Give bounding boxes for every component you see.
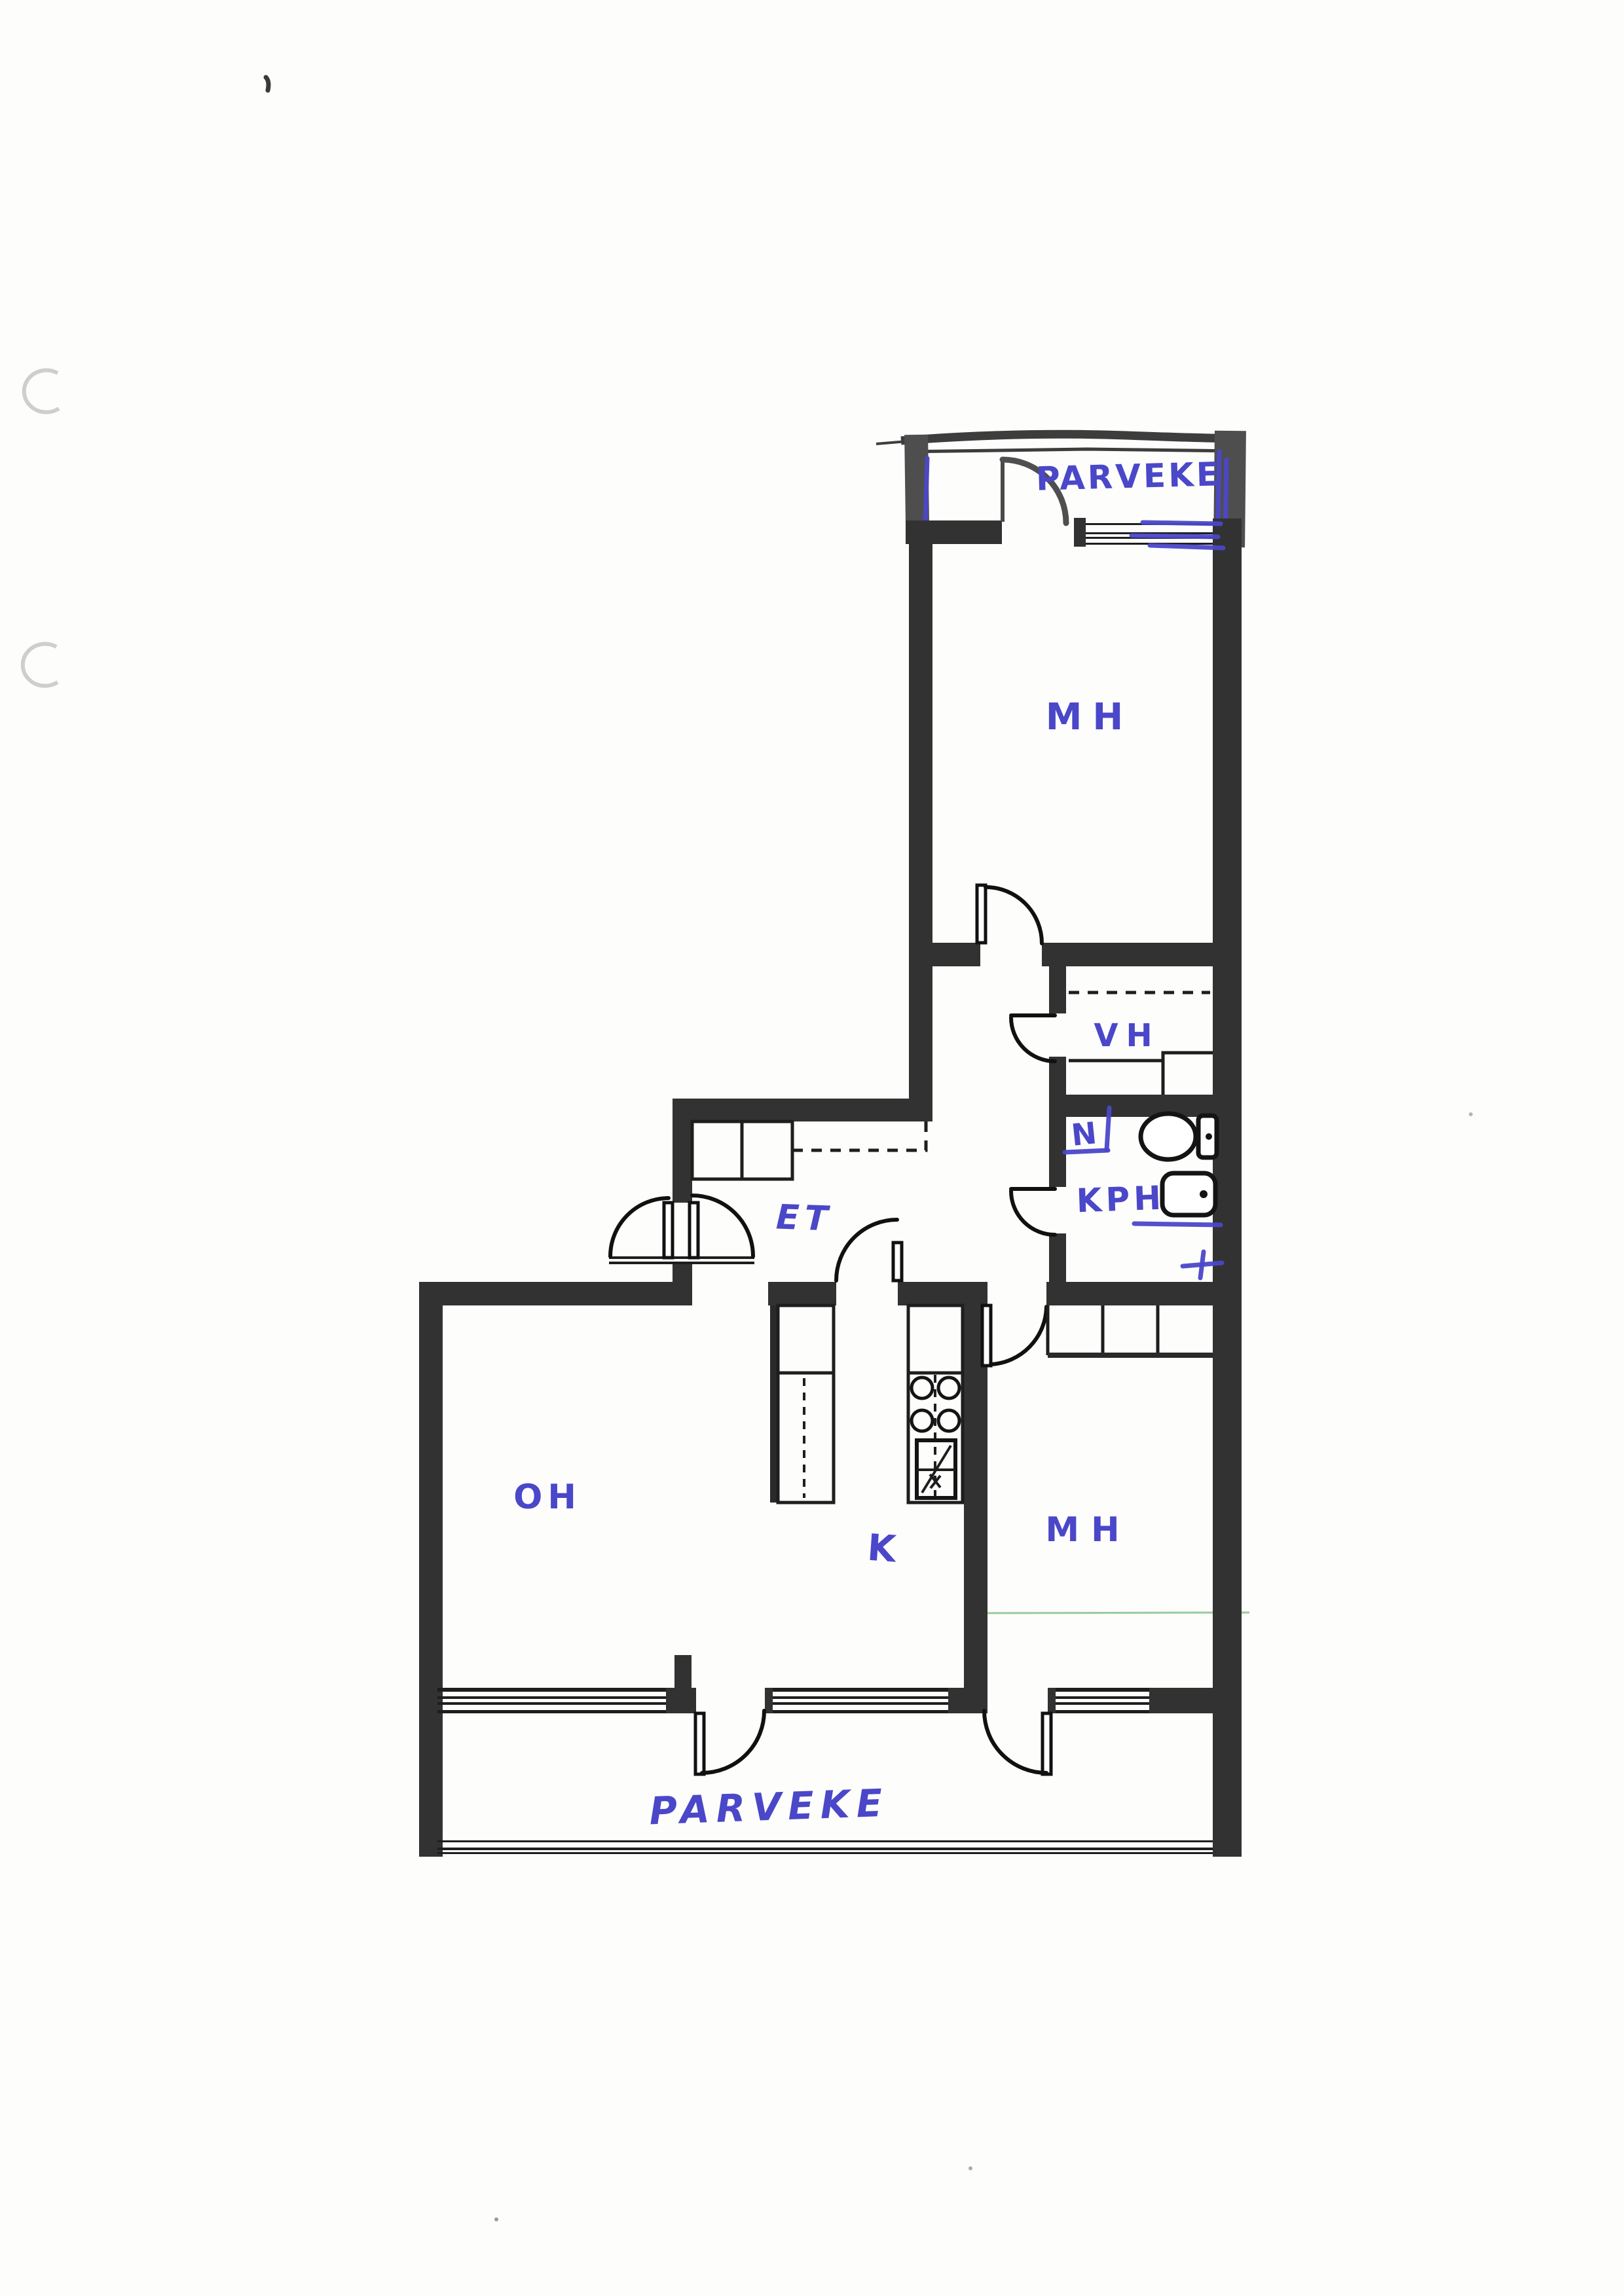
room-labels: PARVEKE MH VH KPH N ET OH K MH PARVEKE [513, 455, 1222, 1833]
wall-segment [1049, 1057, 1066, 1187]
sink-icon [1162, 1173, 1215, 1215]
wardrobe-bottom-bedroom [1048, 1305, 1213, 1358]
balcony-railing-sketch [901, 434, 1246, 441]
room-label-bedroom-top: MH [1046, 696, 1134, 738]
wall-pier [948, 1688, 986, 1713]
wardrobe-hallway [692, 1121, 926, 1179]
balcony-railing-sketch-inner [906, 449, 1242, 452]
window-bottom-bedroom [1056, 1688, 1149, 1713]
blue-sink-mark [1134, 1224, 1221, 1225]
wall-pier [765, 1688, 773, 1713]
stove-icon [908, 1305, 963, 1503]
window-kitchen [773, 1688, 948, 1713]
room-label-hallway: ET [775, 1198, 834, 1239]
blue-window-mark [1150, 545, 1223, 548]
wall-segment [1042, 943, 1242, 966]
room-label-living-room: OH [513, 1478, 581, 1517]
balcony-door-living-room [695, 1711, 764, 1774]
wall-segment [673, 1099, 932, 1121]
window-living-room [437, 1688, 666, 1713]
kitchen-door [836, 1220, 902, 1281]
wall-pier [666, 1688, 696, 1713]
room-label-balcony-top: PARVEKE [1035, 455, 1221, 498]
scan-artifacts [23, 77, 1473, 2221]
toilet-icon [1141, 1114, 1217, 1159]
wall-segment [1149, 1688, 1242, 1713]
punch-hole-artifact [24, 371, 59, 412]
wall-stub [674, 1655, 692, 1688]
wall-segment [909, 943, 980, 966]
room-label-bathroom: KPH [1076, 1179, 1166, 1220]
bathroom-note: N [1069, 1115, 1098, 1153]
balcony-door-kitchen [984, 1711, 1051, 1774]
wall-segment [768, 1282, 836, 1305]
room-label-balcony-bottom: PARVEKE [648, 1781, 889, 1834]
entrance-door [609, 1195, 754, 1264]
fixtures [692, 993, 1217, 1503]
floor-plan-svg: PARVEKE MH VH KPH N ET OH K MH PARVEKE [0, 0, 1624, 2296]
blue-window-mark [1132, 536, 1218, 537]
wall-segment [909, 520, 932, 1121]
room-label-closet: VH [1094, 1017, 1160, 1054]
bedroom-top-door [977, 885, 1042, 943]
punch-hole-artifact [23, 644, 58, 686]
closet-door [1011, 1015, 1055, 1061]
room-label-bedroom-bottom: MH [1045, 1510, 1131, 1550]
speck [1469, 1112, 1473, 1116]
wall-segment [1049, 966, 1066, 1013]
room-label-kitchen: K [866, 1527, 898, 1571]
closet-niche [1163, 1053, 1213, 1095]
bedroom-bottom-door [982, 1305, 1046, 1366]
stray-pen-mark [266, 77, 268, 90]
scanned-floorplan-page: PARVEKE MH VH KPH N ET OH K MH PARVEKE [0, 0, 1624, 2296]
speck [494, 2217, 498, 2221]
blue-window-mark [1143, 522, 1221, 524]
door-jamb-block [1074, 518, 1086, 547]
wall-pier [1048, 1688, 1056, 1713]
wall-segment [1046, 1282, 1242, 1305]
balcony-bottom-railing [437, 1840, 1213, 1854]
wall-segment [419, 1282, 692, 1305]
bathroom-door [1011, 1189, 1055, 1235]
blue-cross-mark [1183, 1263, 1222, 1266]
wall-segment [419, 1282, 443, 1857]
bathroom-note-mark [1107, 1108, 1109, 1150]
blue-corner-mark [925, 458, 927, 522]
speck [969, 2166, 972, 2170]
kitchen-counter [770, 1305, 834, 1503]
wardrobe-dashed-outline [792, 1121, 926, 1150]
wall-segment [673, 1120, 692, 1203]
scanner-green-line [964, 1613, 1249, 1613]
